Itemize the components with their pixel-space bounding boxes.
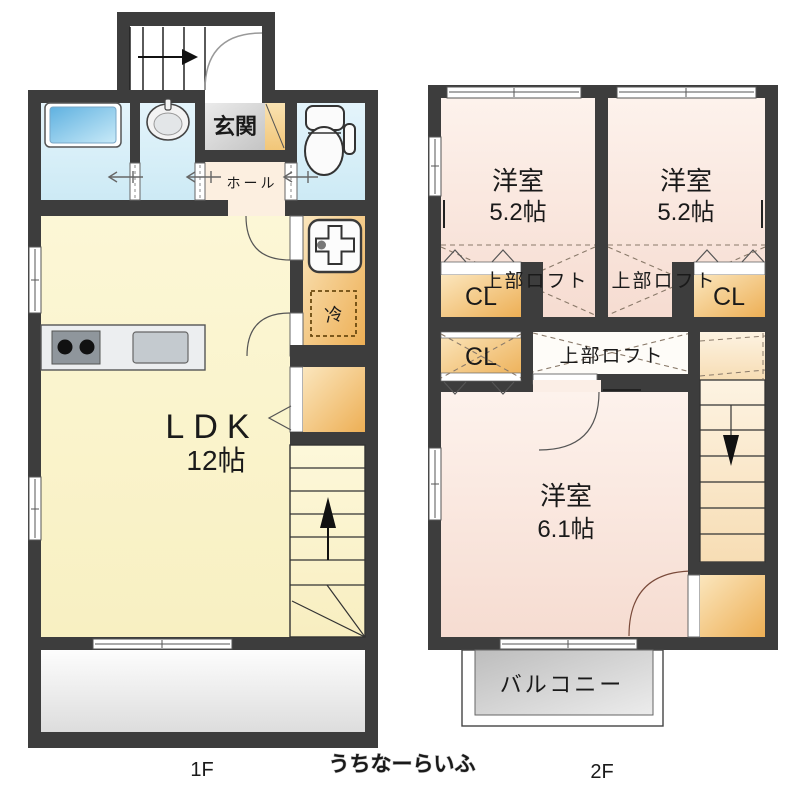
bedroom-divider-wall [595,98,608,317]
floor-2f: バルコニー 洋室 5.2帖 洋室 5.2帖 上部ロフト 上部ロフト 上部ロフト … [428,85,778,783]
closet-label-mid: CL [465,343,497,371]
floorplan-page: 冷 [0,0,800,800]
stairs-bottom-wall [688,562,765,575]
genkan-edge-wall [205,150,285,162]
rear-closet [700,575,765,637]
hall-doorway [228,200,290,216]
room-bedroom3 [441,392,688,637]
bedroom1-size-label: 5.2帖 [489,199,546,226]
bedroom3-size-label: 6.1帖 [537,516,594,543]
closet-label-bedroom2: CL [713,283,745,311]
loft-label-bedroom2: 上部ロフト [611,270,716,292]
closet-label-bedroom1: CL [465,283,497,311]
door-leaf-hall-ldk [290,216,303,260]
nook-wall [290,260,303,313]
floorplan-canvas: 冷 [0,0,800,800]
mid-wall-2f [441,317,765,332]
understair-closet [303,367,365,432]
refrigerator-label: 冷 [323,304,344,327]
loft-label-bedroom1: 上部ロフト [483,270,588,292]
loft-over-stairs [700,332,765,380]
mid-stub-left [521,332,533,380]
bedroom2-size-label: 5.2帖 [657,199,714,226]
rear-closet-door [688,575,700,637]
bathtub-icon [45,103,121,147]
ldk-name-label: LDK [165,408,258,446]
floor-1f: 冷 [28,12,378,781]
room3-doorway [533,380,601,392]
stairs-1f [290,445,365,637]
floor-2f-label: 2F [590,761,613,783]
bedroom3-name-label: 洋室 [540,481,592,511]
bedroom1-name-label: 洋室 [492,166,544,196]
washing-machine-pan-icon [309,220,361,272]
stairs-2f [700,332,765,562]
terrace [41,650,365,732]
floor-1f-label: 1F [190,759,213,781]
closet-bottom-wall [290,432,365,445]
stair-wall-2f [688,332,700,575]
genkan-label: 玄関 [213,114,257,139]
loft-label-mid: 上部ロフト [559,345,664,367]
ldk-size-label: 12帖 [186,445,245,476]
kitchen-sink [133,332,188,363]
hall-label: ホール [227,175,278,191]
closet-door-strip-1f [290,367,303,432]
balcony-label: バルコニー [500,672,625,697]
site-watermark: うちなーらいふ [329,753,476,776]
kitchen-counter [41,325,205,370]
balcony: バルコニー [462,650,663,726]
bedroom2-name-label: 洋室 [660,166,712,196]
nook-bottom-wall [290,345,365,367]
